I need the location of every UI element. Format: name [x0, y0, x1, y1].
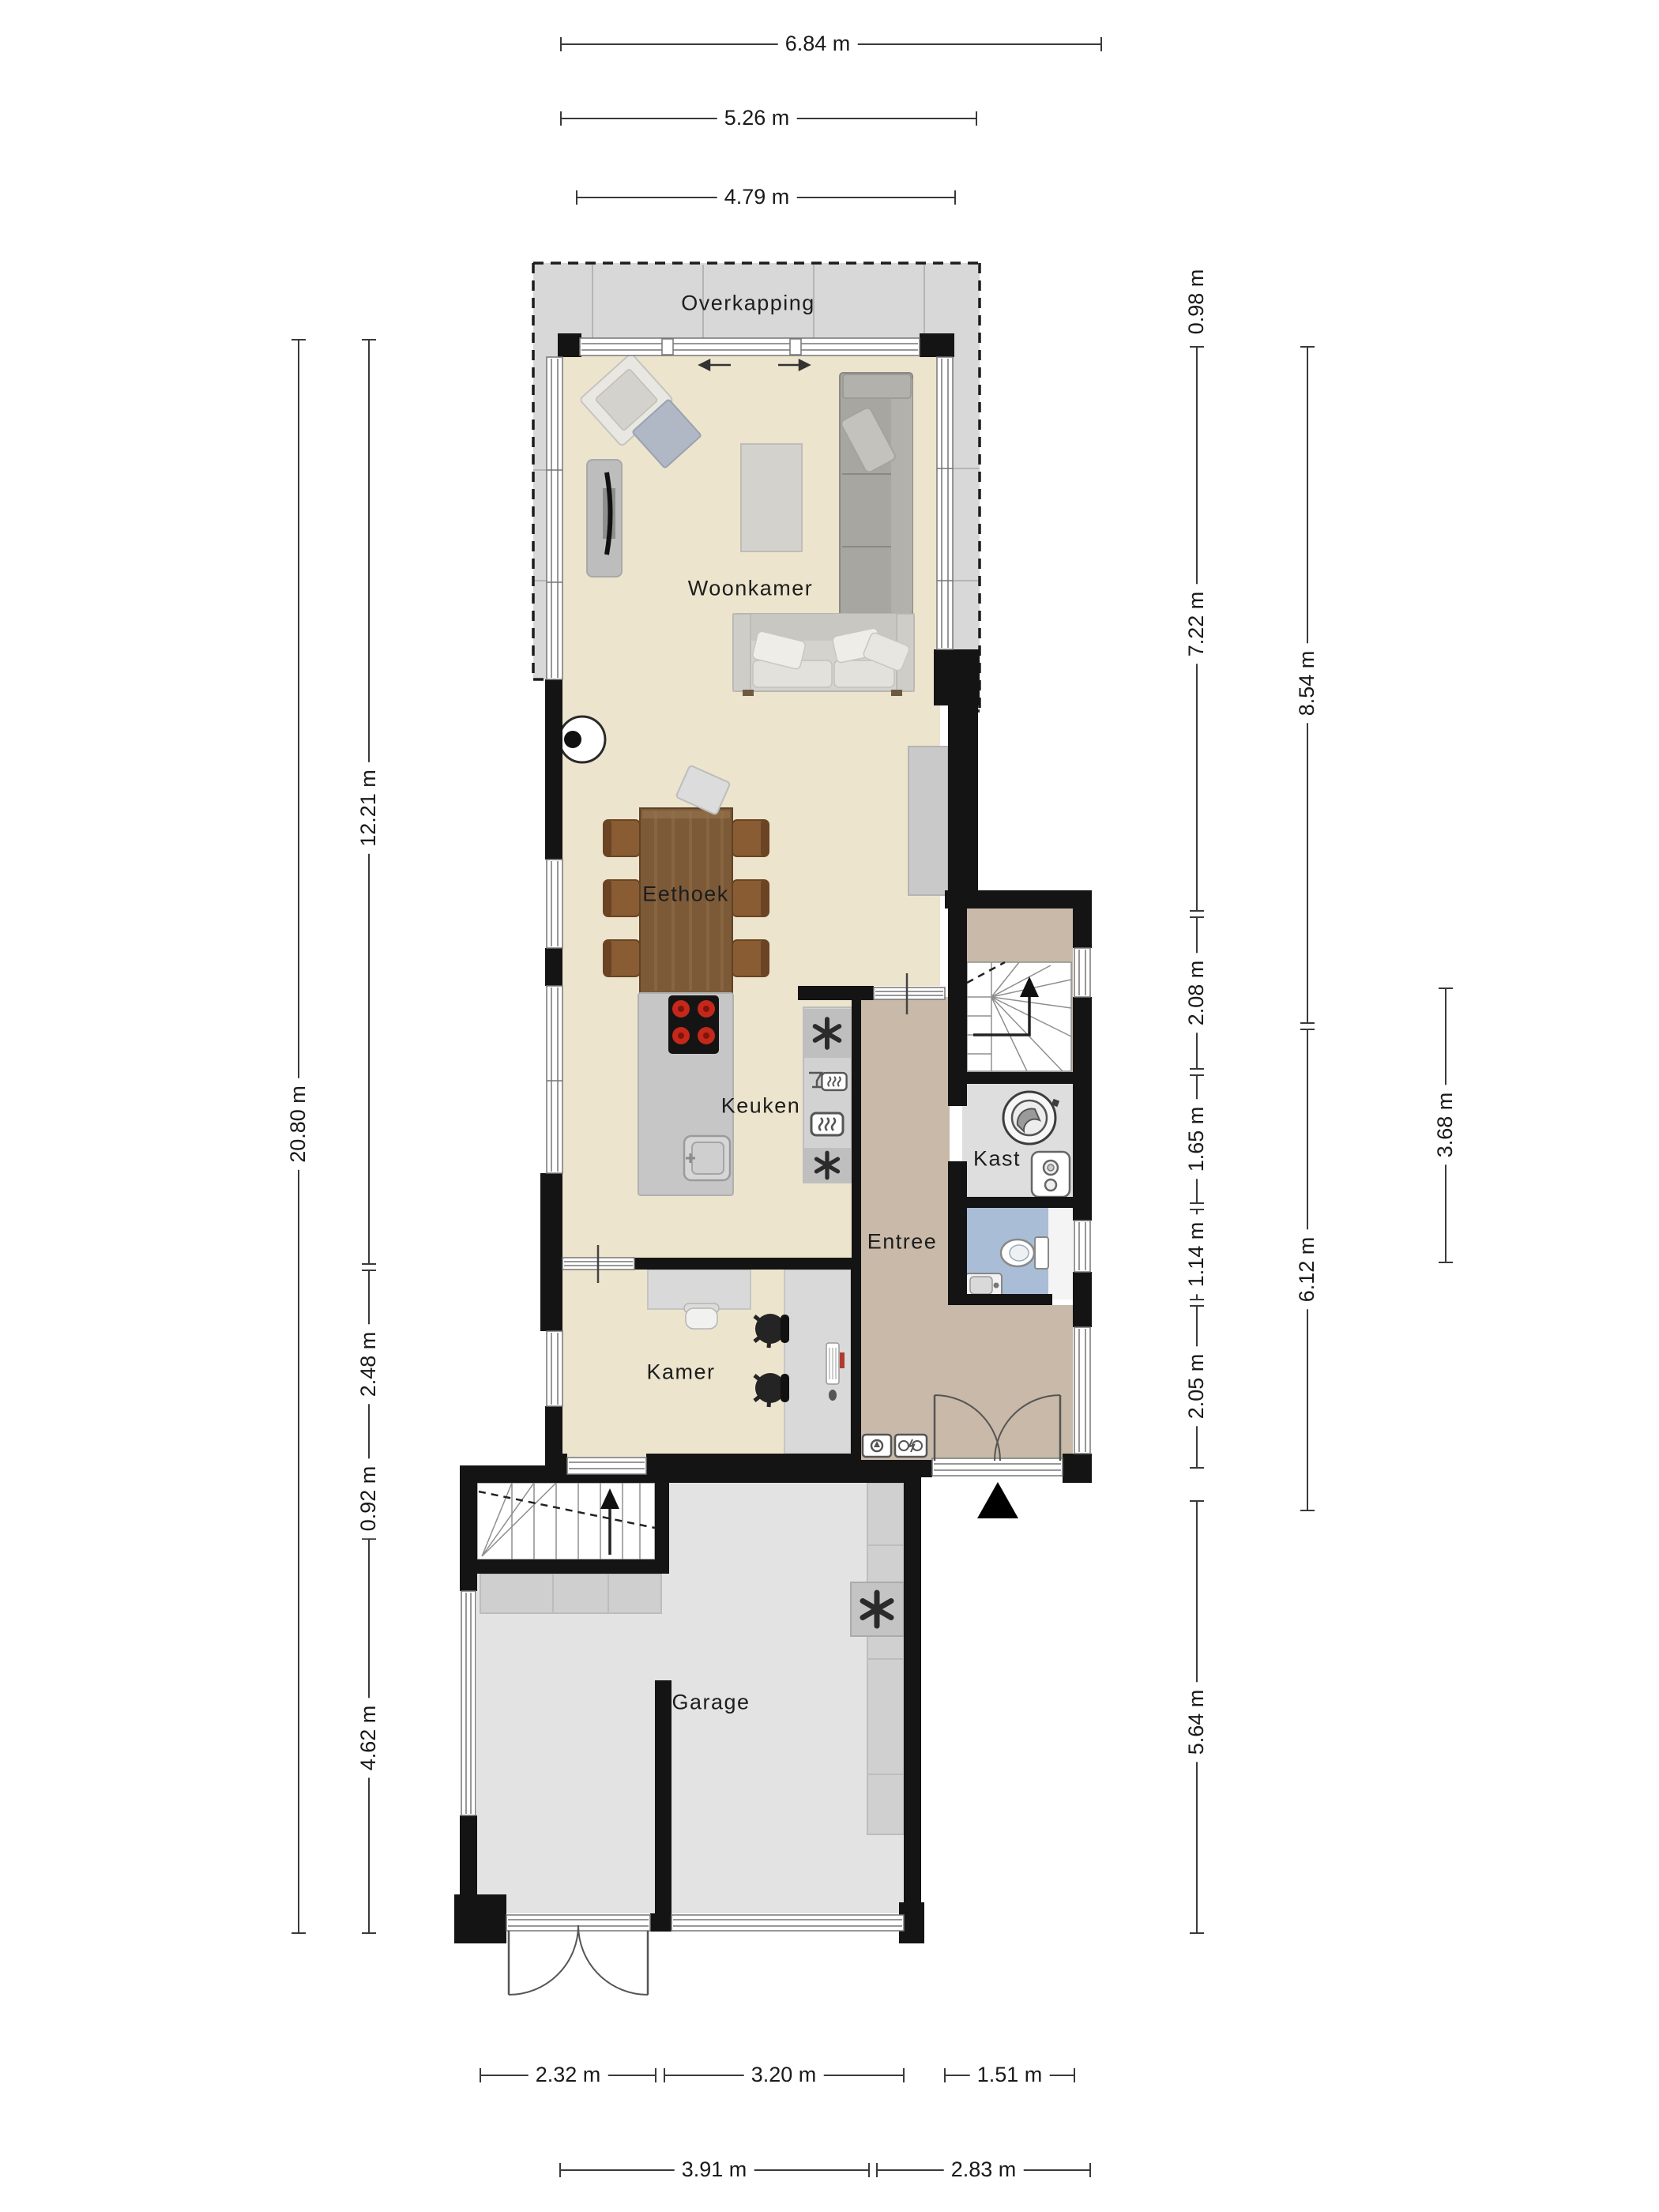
room-label-kast: Kast	[973, 1147, 1021, 1172]
dim-right-4: 1.14 m	[1184, 1215, 1209, 1295]
dim-right-5: 2.05 m	[1184, 1347, 1209, 1427]
boiler-icon	[1032, 1152, 1070, 1197]
dim-left-4: 4.62 m	[356, 1698, 382, 1778]
sofa-wide	[733, 614, 914, 696]
room-label-overkapping: Overkapping	[681, 292, 815, 316]
garage-double-door	[506, 1915, 650, 1995]
floorplan-page: Overkapping Woonkamer Eethoek Keuken Kas…	[0, 0, 1659, 2212]
dim-right-1: 7.22 m	[1184, 585, 1209, 664]
sink-icon	[684, 1136, 730, 1180]
dim-right-8: 6.12 m	[1295, 1230, 1320, 1310]
dim-right-0: 0.98 m	[1184, 262, 1209, 342]
dim-left-3: 0.92 m	[356, 1459, 382, 1539]
coffee-table	[741, 444, 802, 551]
kitchen-counter	[803, 1007, 852, 1183]
room-label-entree: Entree	[867, 1230, 938, 1255]
entrance-arrow-icon	[977, 1482, 1018, 1518]
room-label-keuken: Keuken	[721, 1094, 801, 1119]
room-label-woonkamer: Woonkamer	[688, 577, 814, 601]
room-label-eethoek: Eethoek	[642, 882, 729, 907]
dim-right-9: 3.68 m	[1433, 1085, 1458, 1165]
oven-icon	[811, 1113, 843, 1135]
garage-door	[671, 1915, 904, 1931]
dim-right-2: 2.08 m	[1184, 954, 1209, 1033]
stairs-main	[967, 962, 1071, 1071]
dim-right-7: 8.54 m	[1295, 644, 1320, 724]
floorplan-drawing	[0, 0, 1659, 2212]
garage-freezer-icon	[851, 1582, 904, 1636]
dim-bottom-1: 3.20 m	[744, 2063, 824, 2088]
kitchen-island	[638, 993, 733, 1195]
dim-bottom-3: 3.91 m	[675, 2157, 754, 2183]
dim-top-2: 4.79 m	[717, 185, 797, 210]
desk-chair	[684, 1303, 719, 1329]
hand-basin-icon	[965, 1273, 1002, 1297]
dim-bottom-0: 2.32 m	[529, 2063, 608, 2088]
tv-cabinet	[587, 460, 622, 577]
dim-top-0: 6.84 m	[778, 32, 858, 57]
toilet-icon	[1001, 1237, 1048, 1269]
dim-bottom-2: 1.51 m	[970, 2063, 1050, 2088]
hall-cabinet	[908, 747, 948, 895]
floor-entree	[861, 997, 950, 1305]
garage-workbench	[480, 1574, 661, 1613]
room-label-garage: Garage	[671, 1691, 750, 1715]
dim-top-1: 5.26 m	[717, 106, 797, 131]
cooktop-icon	[668, 995, 719, 1054]
dim-bottom-4: 2.83 m	[944, 2157, 1024, 2183]
dim-right-6: 5.64 m	[1184, 1683, 1209, 1762]
dim-right-3: 1.65 m	[1184, 1100, 1209, 1179]
room-label-kamer: Kamer	[646, 1360, 715, 1385]
garage-stairs	[477, 1483, 655, 1559]
dim-left-0: 20.80 m	[286, 1078, 311, 1170]
sofa-long	[840, 373, 912, 616]
dim-left-1: 12.21 m	[356, 762, 382, 854]
meter-icons	[863, 1435, 927, 1457]
dim-left-2: 2.48 m	[356, 1325, 382, 1405]
